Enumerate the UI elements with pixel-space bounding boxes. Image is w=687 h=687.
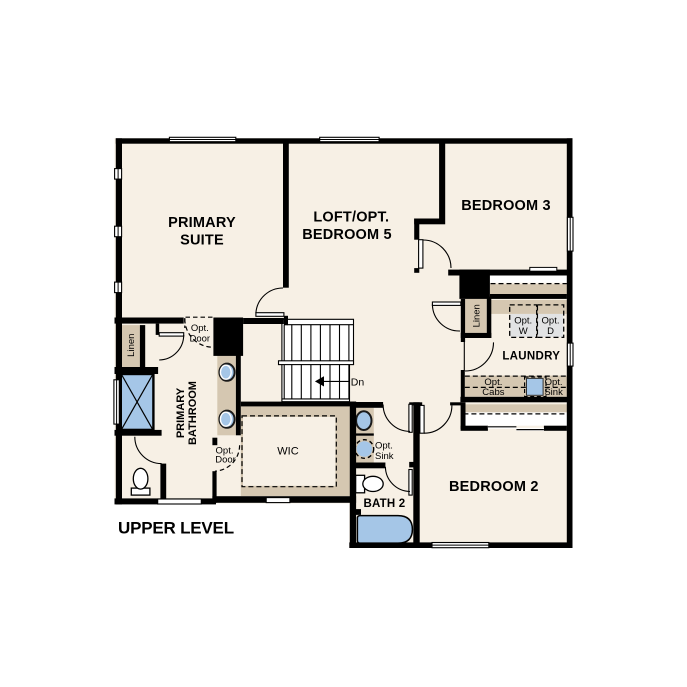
svg-text:Sink: Sink <box>375 451 394 462</box>
svg-text:Cabs: Cabs <box>482 387 504 398</box>
svg-text:Dn: Dn <box>351 376 365 388</box>
svg-text:UPPER LEVEL: UPPER LEVEL <box>118 518 234 537</box>
svg-text:W: W <box>519 326 528 337</box>
svg-text:BATH 2: BATH 2 <box>363 498 405 510</box>
svg-text:BEDROOM 2: BEDROOM 2 <box>449 479 539 495</box>
svg-text:Door: Door <box>215 454 236 465</box>
svg-text:Door: Door <box>190 334 211 345</box>
svg-text:Opt.: Opt. <box>514 315 532 326</box>
svg-text:WIC: WIC <box>277 446 298 458</box>
svg-text:Opt.: Opt. <box>375 441 393 452</box>
svg-text:PRIMARY: PRIMARY <box>175 387 187 438</box>
svg-text:LAUNDRY: LAUNDRY <box>502 351 560 363</box>
svg-text:D: D <box>547 326 554 337</box>
svg-text:PRIMARY: PRIMARY <box>168 215 236 231</box>
svg-text:Opt.: Opt. <box>542 315 560 326</box>
svg-text:Sink: Sink <box>544 387 563 398</box>
svg-text:Linen: Linen <box>126 334 137 357</box>
svg-text:Opt.: Opt. <box>191 323 209 334</box>
svg-text:SUITE: SUITE <box>180 233 224 249</box>
svg-text:BEDROOM 5: BEDROOM 5 <box>302 227 392 243</box>
svg-text:BATHROOM: BATHROOM <box>187 381 199 445</box>
svg-text:BEDROOM 3: BEDROOM 3 <box>461 198 551 214</box>
svg-text:Linen: Linen <box>472 304 483 327</box>
svg-text:LOFT/OPT.: LOFT/OPT. <box>313 210 389 226</box>
